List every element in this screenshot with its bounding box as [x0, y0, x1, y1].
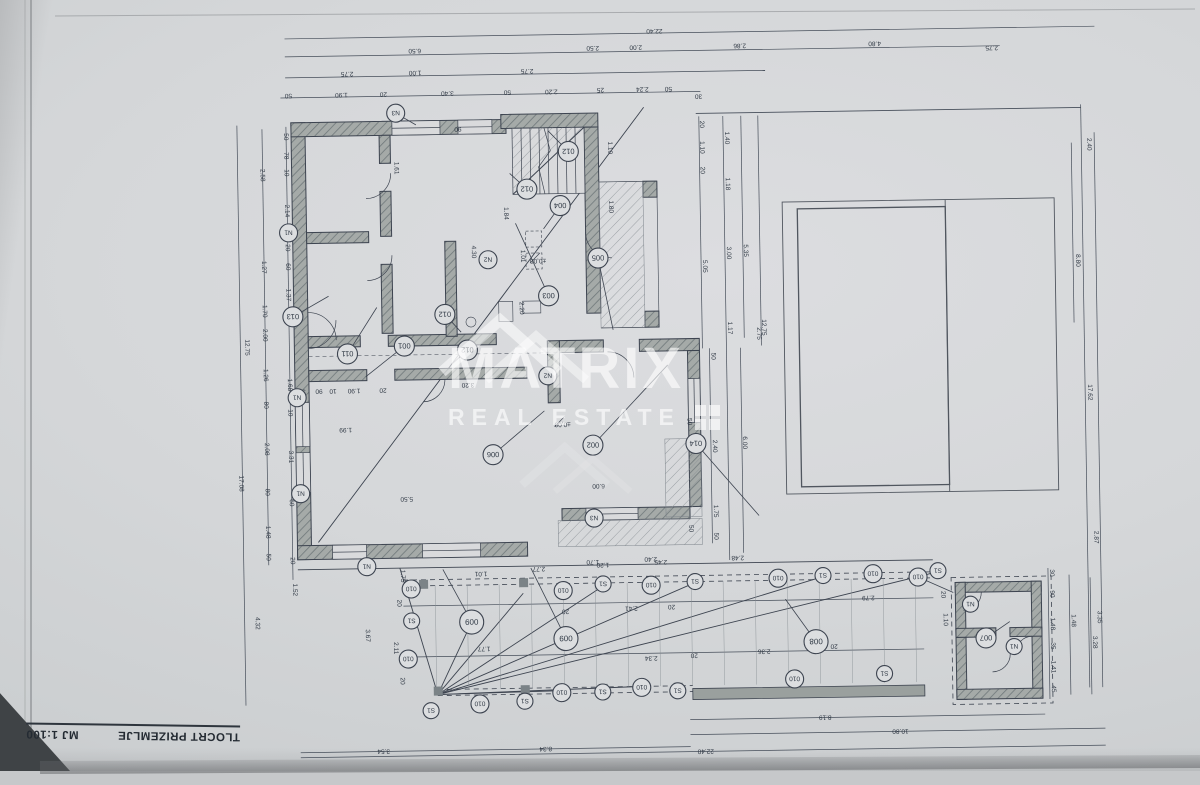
dimension-label: 1.52 [291, 583, 298, 596]
dimension-label: 20 [289, 557, 296, 565]
tag-leader [592, 365, 669, 445]
dimension-label: 2.45 [654, 558, 667, 565]
dimension-label: 2.58 [259, 169, 266, 182]
dimension-label: 10 [329, 387, 337, 394]
dimension-label: 20 [395, 600, 402, 608]
tag-label: S1 [599, 580, 607, 587]
tag-label: N2 [483, 255, 492, 262]
tag-label: N1 [1010, 642, 1019, 649]
dimension-label: 20 [830, 642, 838, 649]
pergola-grid-line [691, 582, 693, 686]
level-mark: ±0,00 [554, 420, 571, 427]
dimension-label: 1.17 [726, 322, 733, 335]
tag-label: 012 [562, 147, 575, 156]
tag-label: S1 [407, 617, 415, 624]
tag-label: 010 [912, 573, 923, 580]
tag-label: 004 [554, 201, 567, 210]
dimension-label: 4.80 [868, 40, 881, 47]
title-block: TLOCRT PRIZEMLJE MJ 1:100 [26, 723, 240, 743]
dimension-label: 2.86 [733, 42, 746, 49]
tag-label: 011 [341, 349, 353, 358]
dimension-label: 50 [709, 353, 716, 361]
dimension-label: 20 [379, 90, 387, 97]
dimension-label: 2.20 [545, 88, 558, 95]
dimension-label: 30 [694, 92, 702, 99]
dimension-label: 2.24 [636, 85, 649, 92]
tag-label: 002 [587, 440, 600, 449]
dimension-label: 2.41 [625, 604, 638, 611]
covered-terrace-hatch [553, 180, 703, 546]
tag-label: N1 [293, 393, 302, 400]
dimension-label: 80 [264, 489, 271, 497]
dimension-label: 1.99 [339, 426, 352, 433]
pergola-grid-line [499, 585, 501, 689]
dimension-label: 2.14 [283, 205, 290, 218]
pergola-grid-line [627, 583, 629, 687]
dimension-label: 2.75 [755, 327, 762, 340]
dimension-label: 2.75 [520, 67, 533, 74]
dimension-label: 50 [265, 554, 272, 562]
pergola-grid-line [851, 579, 853, 683]
dimension-label: 2.79 [862, 594, 875, 601]
dimension-label: 1.68 [286, 378, 293, 391]
dimension-label: 25 [596, 86, 604, 93]
dimension-label: 50 [282, 133, 289, 141]
dimension-label: 3.20 [461, 381, 474, 388]
tag-label: 006 [487, 450, 500, 459]
dimension-label: 1.70 [261, 305, 268, 318]
dimension-label: 2.08 [263, 443, 270, 456]
dimension-label: 10.80 [892, 727, 909, 734]
dimension-label: 1.37 [284, 289, 291, 302]
dimension-label: 8.19 [818, 713, 831, 720]
dimension-label: 1.80 [607, 200, 614, 213]
dimension-label: 2.40 [1085, 138, 1092, 151]
tag-label: N3 [589, 514, 598, 521]
dimension-label: 5.35 [742, 244, 749, 257]
dimension-label: 1.90 [335, 91, 348, 98]
dimension-label: 3.31 [287, 450, 294, 463]
dimension-label: 20 [690, 651, 698, 658]
dimension-label: 1.26 [262, 369, 269, 382]
scanned-floor-plan-page: 22.406.502.502.002.864.802.752.751.002.7… [0, 0, 1200, 771]
tag-label: S1 [691, 577, 699, 584]
dimension-label: 22.40 [646, 27, 663, 34]
dimension-label: 1.90 [347, 387, 360, 394]
tag-label: S1 [521, 697, 529, 704]
dimension-label: 90 [454, 125, 462, 132]
tag-label: 010 [789, 675, 800, 682]
tag-label: N1 [362, 562, 371, 569]
dimension-label: 50 [284, 92, 292, 99]
dimension-label: 1.20 [596, 561, 609, 568]
tag-label: S1 [819, 571, 827, 578]
dimension-label: 1.84 [502, 207, 509, 220]
dimension-label: 1.77 [477, 645, 490, 652]
tag-label: 010 [405, 585, 416, 592]
tag-label: S1 [880, 669, 888, 676]
dimension-label: 35 [1049, 642, 1056, 650]
dimension-label: 20 [561, 608, 569, 615]
dimension-label: 90 [315, 387, 323, 394]
dimension-label: 1.01 [519, 250, 526, 263]
dimension-label: 3.35 [1096, 611, 1103, 624]
dimension-label: 1.18 [724, 178, 731, 191]
dimension-label: 1.10 [606, 141, 613, 154]
dimension-label: 78 [282, 152, 289, 160]
dimension-label: 17.62 [1086, 384, 1093, 401]
pool-area [782, 198, 1059, 494]
pergola-grid-line [435, 586, 437, 690]
dimension-label: 5.05 [701, 260, 708, 273]
pergola-grid-line [787, 580, 789, 684]
dimension-label: 6.00 [741, 436, 748, 449]
floor-plan-drawing: 22.406.502.502.002.864.802.752.751.002.7… [0, 0, 1200, 780]
tag-label: S1 [427, 706, 435, 713]
tag-label: 013 [287, 312, 300, 321]
pergola-grid-line [723, 581, 725, 685]
tag-label: 009 [464, 617, 478, 626]
dimension-label: 2.11 [392, 642, 399, 655]
tag-label: 010 [772, 574, 783, 581]
tag-label: S1 [598, 688, 606, 695]
dimension-label: 45 [1050, 685, 1057, 693]
tag-label: 012 [439, 310, 452, 319]
dimension-label: 10 [286, 409, 293, 417]
tag-label: 008 [809, 637, 823, 646]
dimension-label: 20 [379, 386, 387, 393]
dimension-label: 1.75 [399, 570, 406, 583]
dimension-label: 20 [698, 121, 705, 129]
dimension-label: 2.00 [629, 43, 642, 50]
dimension-label: 2.75 [985, 44, 998, 51]
dimension-label: 4.32 [254, 617, 261, 630]
dimension-label: 2.50 [586, 44, 599, 51]
tag-label: 012 [461, 345, 474, 354]
tag-label: S1 [673, 686, 681, 693]
dimension-label: 1.27 [260, 261, 267, 274]
dimension-label: 2.40 [711, 440, 718, 453]
dimension-label: 80 [262, 402, 269, 410]
dimension-label: 1.10 [698, 141, 705, 154]
tag-label: 010 [557, 586, 568, 593]
dimension-label: 2.34 [645, 654, 658, 661]
dimension-label: 20 [939, 591, 946, 599]
dimension-label: 50 [503, 88, 511, 95]
drawing-title: TLOCRT PRIZEMLJE [118, 729, 241, 743]
dimension-label: 50 [686, 418, 693, 426]
dimension-label: 2.36 [757, 647, 770, 654]
pergola-grid-line [915, 578, 917, 682]
dimension-label: 3.00 [725, 247, 732, 260]
dimension-label: 50 [712, 533, 719, 541]
tag-label: 014 [690, 439, 703, 448]
pergola-grid-line [595, 583, 597, 687]
tag-label: 010 [556, 688, 567, 695]
dimension-label: 2.20 [518, 302, 525, 315]
dimension-label: 30 [1048, 569, 1055, 577]
tag-leader [696, 443, 759, 517]
level-mark: ±0,00 [529, 257, 546, 264]
dimension-label: 50 [664, 85, 672, 92]
dimension-label: 22.40 [697, 747, 714, 754]
pergola-grid-line [467, 585, 469, 689]
dimension-label: 1.48 [264, 526, 271, 539]
dimension-label: 60 [284, 263, 291, 271]
dimension-label: 6.00 [592, 482, 605, 489]
tag-label: N3 [391, 109, 400, 116]
tag-label: N1 [284, 228, 293, 235]
dimension-label: 20 [399, 677, 406, 685]
dimension-label: 1.75 [712, 505, 719, 518]
drawing-scale: MJ 1:100 [26, 728, 79, 741]
tag-label: 010 [645, 581, 656, 588]
dimension-label: 6.50 [408, 47, 421, 54]
dimension-label: 2.75 [340, 70, 353, 77]
tag-label: 009 [559, 634, 573, 643]
tag-label: S1 [934, 566, 942, 573]
pergola-grid-line [755, 581, 757, 685]
dimension-label: 8.34 [539, 745, 552, 752]
dimension-label: 20 [667, 603, 675, 610]
dimension-label: 1.61 [392, 162, 399, 175]
dimension-label: 3.54 [377, 747, 390, 754]
dimension-label: 1.40 [723, 132, 730, 145]
dimension-label: 3.40 [441, 89, 454, 96]
dimension-label: 3.28 [1091, 636, 1098, 649]
tag-label: N2 [543, 371, 552, 378]
pergola-grid-line [531, 584, 533, 688]
dimension-label: 20 [284, 244, 291, 252]
dimension-label: 1.00 [408, 69, 421, 76]
tag-label: 010 [402, 655, 413, 662]
dimension-label: 4.30 [470, 246, 477, 259]
tag-label: 012 [521, 184, 534, 193]
tag-label: N1 [966, 600, 975, 607]
dimension-label: 1.48 [1049, 618, 1056, 631]
dimension-label: 10 [283, 169, 290, 177]
dimension-label: 8.80 [1074, 254, 1081, 267]
dimension-label: 2.87 [1092, 531, 1099, 544]
dimension-label: 20 [699, 167, 706, 175]
dimension-label: 1.48 [1070, 614, 1077, 627]
tag-label: 003 [542, 291, 555, 300]
tag-label: 010 [474, 699, 485, 706]
dimension-label: 1.41 [1049, 661, 1056, 674]
tag-label: 010 [636, 683, 647, 690]
tag-label: 005 [592, 253, 605, 262]
dimension-label: 12.75 [243, 339, 250, 356]
dimension-label: 17.08 [237, 475, 244, 492]
tag-label: 010 [867, 569, 878, 576]
dimension-label: 1.01 [474, 570, 487, 577]
dimension-label: 2.77 [532, 565, 545, 572]
tag-label: 001 [398, 341, 411, 350]
dimension-label: 2.48 [731, 554, 744, 561]
dimension-label: 90 [1048, 590, 1055, 598]
tag-label: N1 [296, 489, 305, 496]
dimension-label: 50 [687, 525, 694, 533]
dimension-label: 1.10 [942, 613, 949, 626]
dimension-label: 2.00 [261, 329, 268, 342]
dimension-label: 5.50 [400, 495, 413, 502]
dimension-label: 3.67 [364, 629, 371, 642]
tag-label: 007 [980, 633, 993, 642]
